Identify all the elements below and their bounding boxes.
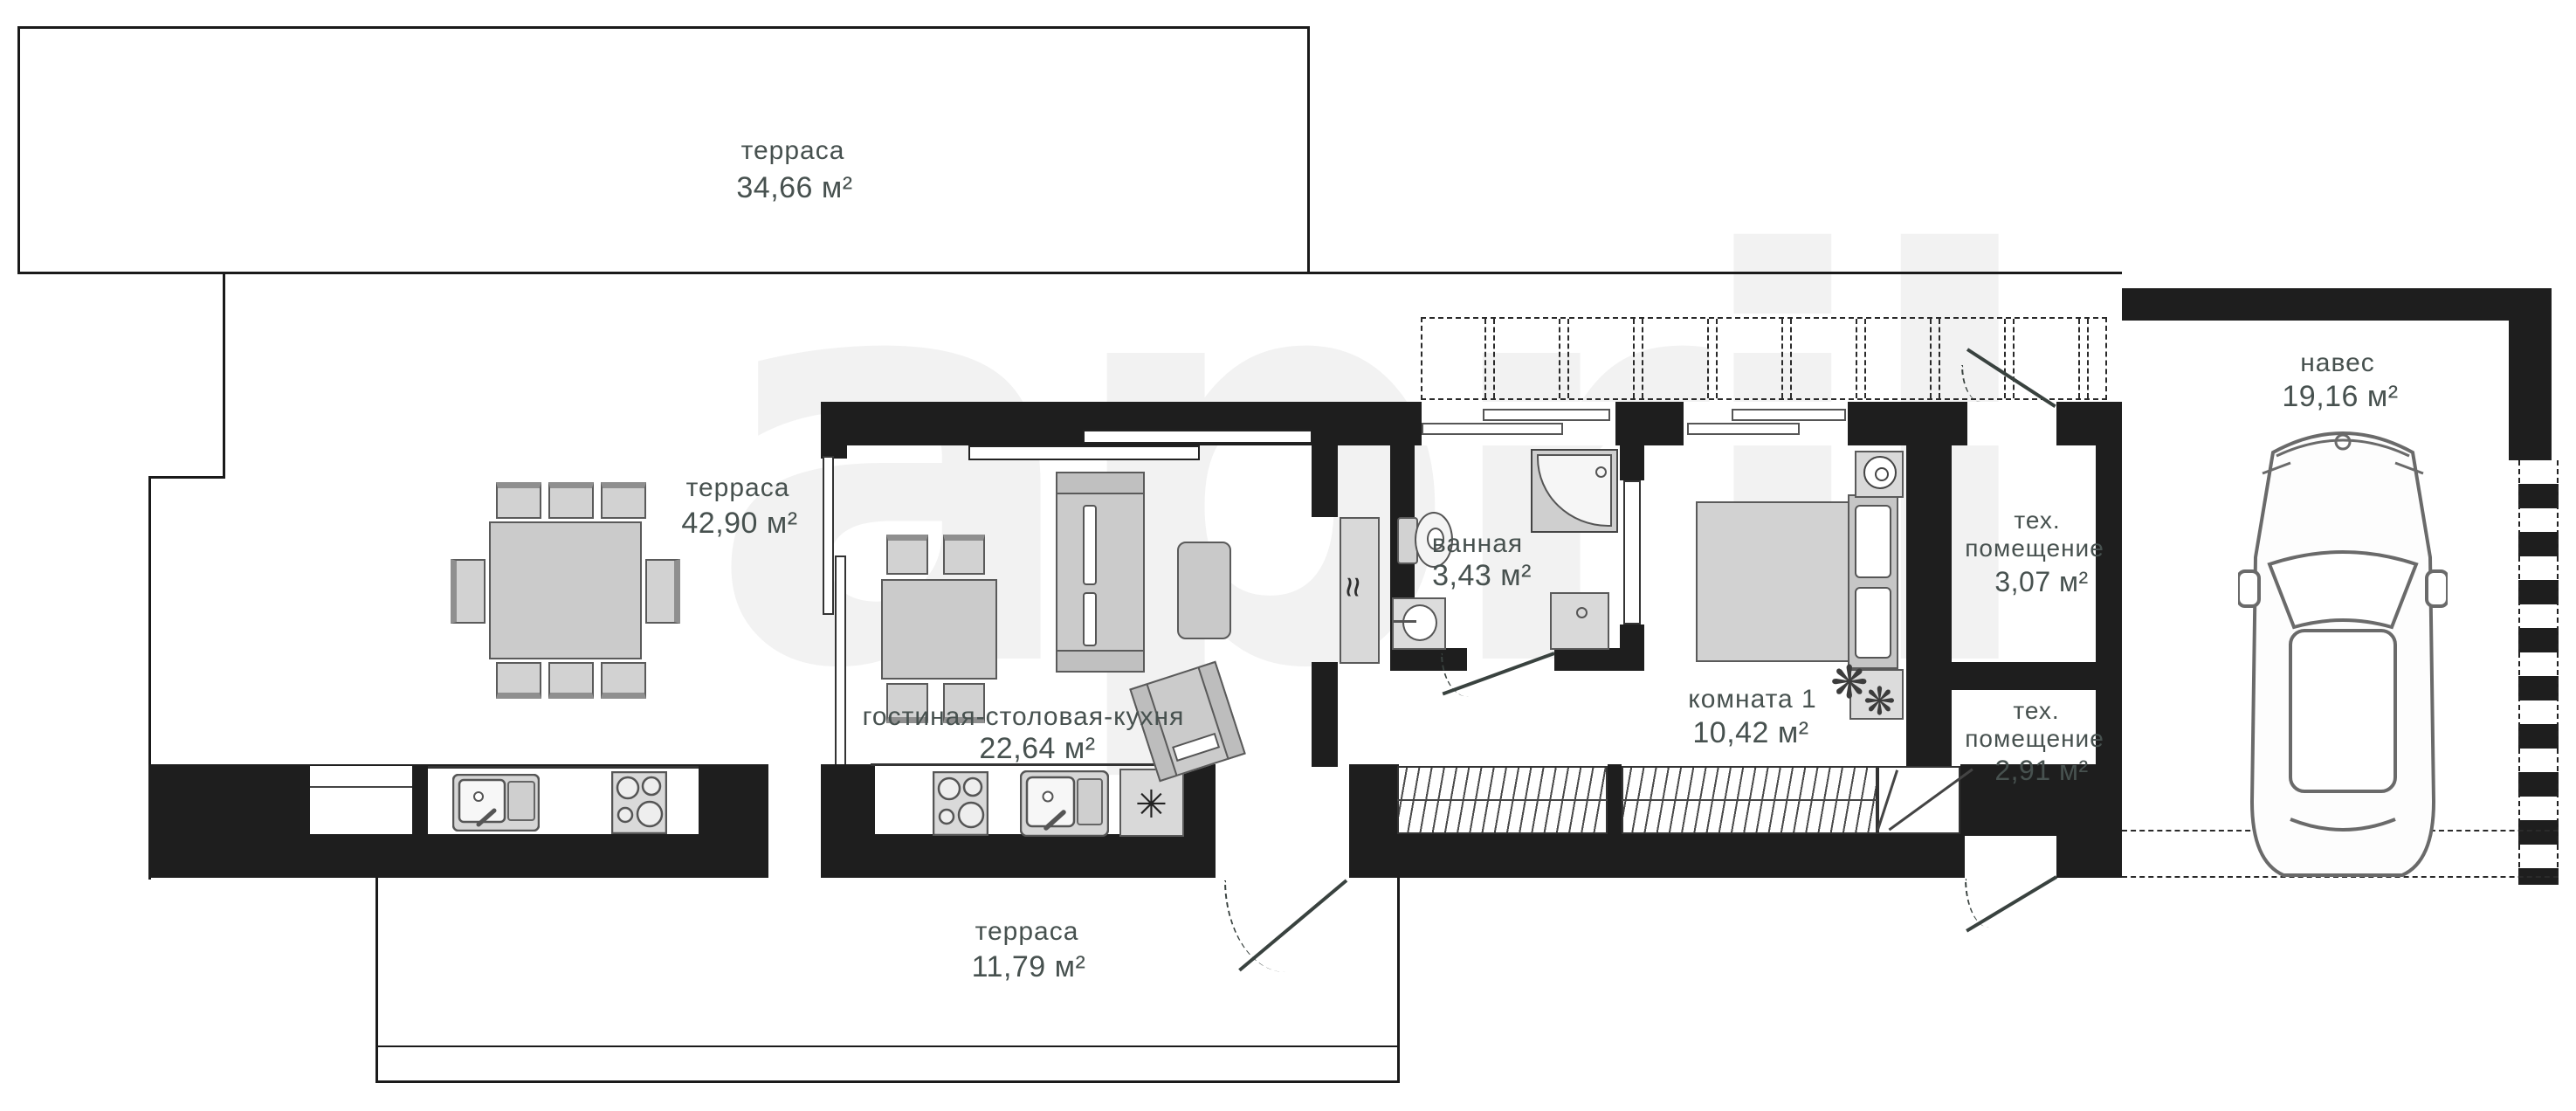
terrace-left-area: 42,90 м²: [681, 507, 797, 541]
canopy-label: навес: [2300, 348, 2375, 378]
terrace-top-outline: [17, 26, 1310, 274]
glazed-panel-midline: [1622, 799, 1877, 801]
outdoor-sink: [452, 774, 540, 832]
terrace-chair: [645, 559, 680, 624]
pergola-beam: [1484, 319, 1495, 398]
pergola-beam: [2004, 319, 2015, 398]
tech2-label-line2: помещение: [1965, 725, 2104, 753]
left-step-horizontal: [148, 476, 225, 479]
bed: [1696, 501, 1849, 662]
room1-label: комната 1: [1688, 685, 1816, 714]
terrace-bottom-bottom-edge: [375, 1080, 1400, 1083]
bathroom-area: 3,43 м²: [1432, 559, 1532, 593]
bathroom-window-bar: [1483, 409, 1610, 421]
pergola-beam: [1707, 319, 1718, 398]
terrace-bottom-left-edge: [375, 878, 378, 1083]
terrace-bottom-label: терраса: [975, 917, 1079, 947]
carport-right-wall: [2509, 288, 2552, 460]
south-wall-segment: [1183, 764, 1216, 836]
tech2-door-arc: [1965, 879, 1989, 928]
room1-area: 10,42 м²: [1692, 716, 1808, 750]
bedroom-window-bar: [1687, 423, 1800, 435]
floor-plan: april ≈: [0, 0, 2576, 1111]
living-east-wall-bottom: [1312, 662, 1338, 767]
dining-table-outdoor: [489, 521, 642, 659]
terrace-left-label: терраса: [686, 473, 790, 503]
terrace-chair: [601, 662, 646, 699]
tech1-label-line1: тех.: [2014, 507, 2060, 535]
canopy-area: 19,16 м²: [2282, 380, 2398, 414]
terrace-top-area: 34,66 м²: [736, 171, 852, 205]
terrace-chair: [548, 482, 594, 519]
hall-cabinet: [1550, 592, 1609, 650]
tech2-area: 2,91 м²: [1994, 755, 2088, 787]
outdoor-window-line: [310, 786, 412, 788]
south-wall-base: [1349, 834, 1965, 878]
sofa-cushion: [1083, 505, 1097, 585]
bedroom-door-leaf: [1623, 480, 1641, 625]
dining-table-indoor: [881, 579, 997, 680]
kitchen-sink: [1020, 770, 1109, 837]
pergola-beam: [1559, 319, 1569, 398]
carport-fence: [2518, 460, 2559, 885]
tv-panel: [1083, 430, 1312, 444]
terrace-door-arc: [1224, 880, 1285, 972]
dining-chair: [886, 535, 928, 575]
bathroom-label: ванная: [1432, 529, 1523, 559]
tech2-label-line1: тех.: [2013, 697, 2059, 725]
south-wall-base: [821, 834, 1216, 878]
sofa-armrest: [1056, 472, 1145, 494]
tech-rooms-divider: [1952, 662, 2096, 690]
coffee-table: [1177, 542, 1231, 639]
carport-top-wall: [2122, 288, 2552, 321]
sliding-door-panel: [823, 456, 834, 615]
pergola-beam: [2078, 319, 2089, 398]
bathroom-window-bar: [1422, 423, 1563, 435]
tv-console: [968, 445, 1200, 460]
south-wall-mullion: [1608, 764, 1622, 836]
left-step-vertical: [223, 272, 225, 478]
hall-cabinet-knob: [1576, 607, 1588, 618]
living-area: 22,64 м²: [979, 732, 1095, 766]
terrace-bottom-area: 11,79 м²: [972, 950, 1086, 984]
pergola-beam: [1781, 319, 1792, 398]
outdoor-stove: [611, 771, 667, 834]
terrace-bottom-step-line: [375, 1045, 1399, 1047]
washbasin-bowl: [1402, 604, 1437, 641]
living-east-wall-top: [1312, 402, 1338, 517]
terrace-chair: [451, 559, 486, 624]
tech1-area: 3,07 м²: [1994, 566, 2088, 598]
terrace-bottom-right-edge: [1397, 878, 1400, 1083]
bedroom-window-bar: [1732, 409, 1846, 421]
south-wall-segment: [1349, 764, 1399, 836]
pergola-beam: [1633, 319, 1643, 398]
sofa-armrest: [1056, 650, 1145, 673]
washbasin-tap: [1394, 620, 1416, 623]
car: [2238, 404, 2448, 910]
shower-drain: [1595, 466, 1607, 478]
boiler-icon: ≈: [1333, 576, 1374, 597]
pergola-beam: [1856, 319, 1866, 398]
living-label: гостиная-столовая-кухня: [863, 702, 1185, 732]
glazed-panel-midline: [1397, 799, 1608, 801]
sofa: [1056, 472, 1145, 673]
washing-machine-dot: [1875, 467, 1889, 481]
bedroom-west-wall-top: [1620, 445, 1644, 480]
terrace-chair: [601, 482, 646, 519]
tech1-label-line2: помещение: [1965, 535, 2104, 562]
plant-icon: ❋: [1863, 680, 1896, 724]
pergola-beam: [1930, 319, 1940, 398]
tech1-door-opening: [1967, 402, 2056, 445]
terrace-chair: [548, 662, 594, 699]
sofa-cushion: [1083, 592, 1097, 646]
bedroom-west-wall-bottom: [1620, 625, 1644, 671]
terrace-chair: [496, 662, 541, 699]
terrace-top-label: терраса: [741, 136, 845, 166]
fridge-asterisk-icon: ✳: [1135, 783, 1167, 827]
main-top-edge: [1308, 272, 2122, 274]
bed-pillow: [1855, 505, 1891, 578]
cross-window: [1877, 766, 1960, 834]
kitchen-stove: [933, 771, 988, 836]
bed-pillow: [1855, 587, 1891, 659]
sliding-door-panel: [835, 555, 846, 774]
outdoor-counter-edge: [428, 766, 699, 769]
outdoor-window-opening: [310, 766, 412, 834]
dining-chair: [943, 535, 985, 575]
terrace-chair: [496, 482, 541, 519]
south-wall-base: [2056, 834, 2122, 878]
